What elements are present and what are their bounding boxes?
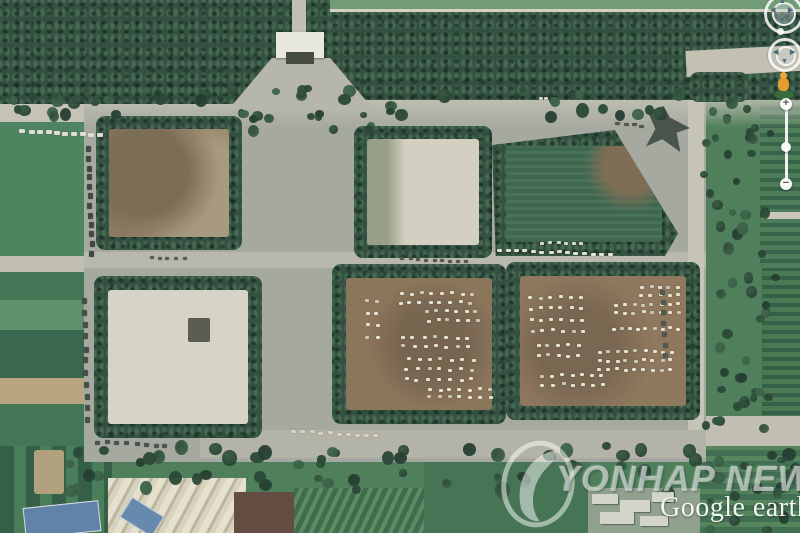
vehicle-dot	[668, 358, 672, 361]
vehicle-dot	[670, 351, 674, 354]
vehicle-dot	[401, 336, 405, 339]
tree-blob	[729, 209, 737, 216]
vehicle-dot	[410, 293, 414, 296]
vehicle-dot	[88, 133, 94, 137]
vehicle-dot	[429, 292, 433, 295]
vehicle-dot	[400, 292, 404, 295]
vehicle-dot	[640, 286, 644, 289]
vehicle-dot	[459, 367, 463, 370]
tree-blob	[209, 443, 221, 455]
vehicle-dot	[413, 345, 417, 348]
vehicle-dot	[608, 253, 613, 256]
tree-blob	[635, 443, 647, 457]
vehicle-dot	[375, 300, 379, 303]
vehicle-dot	[539, 306, 543, 309]
tree-blob	[632, 109, 644, 120]
vehicle-dot	[540, 384, 544, 387]
vehicle-dot	[539, 251, 544, 254]
vehicle-dot	[444, 336, 448, 339]
zoom-in-button[interactable]: +	[780, 98, 792, 110]
vehicle-dot	[591, 384, 595, 387]
vehicle-dot	[291, 430, 296, 433]
vehicle-dot	[468, 302, 472, 305]
tree-blob	[712, 134, 719, 143]
vehicle-dot	[468, 389, 472, 392]
tree-blob	[192, 473, 202, 485]
move-right-arrow[interactable]: ▶	[790, 49, 795, 56]
tree-blob	[60, 108, 71, 121]
vehicle-dot	[86, 156, 91, 162]
tree-blob	[737, 222, 749, 234]
vehicle-dot	[571, 384, 575, 387]
look-right-arrow[interactable]: ▶	[788, 7, 793, 14]
tree-blob	[10, 96, 18, 105]
tree-blob	[103, 96, 113, 104]
vehicle-dot	[83, 370, 88, 376]
vehicle-dot	[557, 241, 561, 244]
vehicle-dot	[183, 257, 187, 260]
tree-blob	[83, 469, 95, 482]
vehicle-dot	[676, 328, 680, 331]
vehicle-dot	[663, 343, 668, 348]
vehicle-dot	[506, 249, 511, 252]
vehicle-dot	[642, 358, 646, 361]
tree-blob	[175, 440, 189, 455]
vehicle-dot	[88, 193, 93, 199]
vehicle-dot	[540, 329, 544, 332]
vehicle-dot	[668, 368, 672, 371]
vehicle-dot	[651, 369, 655, 372]
vehicle-dot	[546, 353, 550, 356]
vehicle-dot	[639, 125, 644, 128]
vehicle-dot	[476, 319, 480, 322]
vehicle-dot	[577, 344, 581, 347]
look-down-arrow[interactable]: ▼	[779, 17, 786, 24]
vehicle-dot	[425, 310, 429, 313]
vehicle-dot	[365, 299, 369, 302]
vehicle-dot	[666, 286, 670, 289]
tree-blob	[720, 368, 729, 377]
vehicle-dot	[668, 311, 672, 314]
tree-blob	[519, 86, 528, 96]
vehicle-dot	[560, 373, 564, 376]
vehicle-dot	[404, 368, 408, 371]
tree-blob	[143, 88, 150, 94]
vehicle-dot	[457, 395, 461, 398]
tree-blob	[723, 116, 731, 124]
tree-blob	[744, 272, 754, 283]
vehicle-dot	[466, 345, 470, 348]
look-left-arrow[interactable]: ◀	[770, 7, 775, 14]
vehicle-dot	[46, 130, 52, 134]
vehicle-dot	[62, 132, 68, 136]
vehicle-dot	[606, 360, 610, 363]
vehicle-dot	[572, 242, 576, 245]
vehicle-dot	[434, 344, 438, 347]
pegman-body	[778, 78, 789, 91]
tree-blob	[317, 455, 325, 463]
tree-blob	[322, 478, 334, 488]
vehicle-dot	[174, 257, 178, 260]
zoom-slider[interactable]: + −	[779, 98, 793, 192]
vehicle-dot	[614, 304, 618, 307]
vehicle-dot	[456, 260, 460, 263]
vehicle-dot	[416, 367, 420, 370]
generated-detail-layer	[0, 0, 800, 533]
vehicle-dot	[650, 359, 654, 362]
tree-blob	[755, 388, 764, 396]
vehicle-dot	[470, 293, 474, 296]
vehicle-dot	[624, 350, 628, 353]
vehicle-dot	[660, 369, 664, 372]
tree-blob	[756, 315, 764, 322]
tree-blob	[716, 289, 727, 299]
google-earth-logo: Google earth	[660, 492, 800, 524]
vehicle-dot	[631, 312, 635, 315]
vehicle-dot	[580, 373, 584, 376]
vehicle-dot	[616, 350, 620, 353]
vehicle-dot	[114, 441, 119, 445]
vehicle-dot	[644, 349, 648, 352]
vehicle-dot	[427, 395, 431, 398]
tree-blob	[382, 451, 394, 465]
tree-blob	[99, 446, 109, 455]
tree-blob	[91, 100, 98, 106]
vehicle-dot	[428, 358, 432, 361]
vehicle-dot	[87, 174, 92, 180]
tree-blob	[764, 394, 773, 401]
vehicle-dot	[444, 346, 448, 349]
vehicle-dot	[124, 441, 129, 445]
vehicle-dot	[85, 394, 90, 400]
tree-blob	[386, 108, 395, 115]
vehicle-dot	[641, 304, 645, 307]
vehicle-dot	[668, 294, 672, 297]
tree-blob	[702, 139, 712, 148]
vehicle-dot	[612, 328, 616, 331]
vehicle-dot	[355, 434, 360, 437]
vehicle-dot	[434, 309, 438, 312]
vehicle-dot	[661, 359, 665, 362]
vehicle-dot	[531, 250, 536, 253]
vehicle-dot	[557, 250, 562, 253]
vehicle-dot	[570, 319, 574, 322]
move-down-arrow[interactable]: ▼	[781, 58, 788, 65]
vehicle-dot	[88, 213, 93, 219]
vehicle-dot	[457, 388, 461, 391]
vehicle-dot	[83, 357, 88, 363]
vehicle-dot	[623, 303, 627, 306]
tree-blob	[329, 125, 338, 134]
vehicle-dot	[105, 440, 110, 444]
vehicle-dot	[89, 222, 94, 228]
vehicle-dot	[639, 294, 643, 297]
vehicle-dot	[641, 368, 645, 371]
vehicle-dot	[440, 292, 444, 295]
tree-blob	[169, 471, 182, 485]
vehicle-dot	[514, 249, 519, 252]
tree-blob	[395, 109, 408, 121]
tree-blob	[723, 242, 734, 255]
vehicle-dot	[580, 319, 584, 322]
vehicle-dot	[470, 369, 474, 372]
vehicle-dot	[676, 293, 680, 296]
vehicle-dot	[564, 242, 568, 245]
vehicle-dot	[82, 310, 87, 316]
vehicle-dot	[29, 130, 35, 134]
vehicle-dot	[663, 353, 668, 358]
vehicle-dot	[662, 332, 667, 337]
vehicle-dot	[598, 351, 602, 354]
vehicle-dot	[423, 336, 427, 339]
vehicle-dot	[540, 375, 544, 378]
vehicle-dot	[460, 379, 464, 382]
vehicle-dot	[551, 384, 555, 387]
tree-blob	[746, 128, 755, 135]
vehicle-dot	[445, 309, 449, 312]
tree-blob	[249, 115, 258, 123]
tree-blob	[598, 104, 608, 114]
tree-blob	[399, 469, 407, 476]
vehicle-dot	[660, 290, 665, 295]
vehicle-dot	[591, 253, 596, 256]
vehicle-dot	[162, 444, 167, 448]
vehicle-dot	[539, 97, 543, 100]
tree-blob	[759, 424, 769, 434]
vehicle-dot	[438, 357, 442, 360]
tree-blob	[709, 107, 717, 116]
vehicle-dot	[632, 368, 636, 371]
vehicle-dot	[597, 368, 601, 371]
vehicle-dot	[623, 359, 627, 362]
tree-blob	[438, 89, 450, 103]
tree-blob	[360, 112, 366, 118]
vehicle-dot	[633, 303, 637, 306]
tree-blob	[238, 110, 248, 119]
vehicle-dot	[373, 434, 378, 437]
tree-blob	[760, 207, 770, 218]
vehicle-dot	[579, 296, 583, 299]
vehicle-dot	[450, 359, 454, 362]
tree-blob	[394, 452, 407, 464]
vehicle-dot	[677, 311, 681, 314]
vehicle-dot	[448, 378, 452, 381]
vehicle-dot	[54, 131, 60, 135]
vehicle-dot	[676, 286, 680, 289]
vehicle-dot	[80, 132, 86, 136]
tree-blob	[576, 103, 589, 118]
vehicle-dot	[648, 294, 652, 297]
vehicle-dot	[409, 257, 413, 260]
vehicle-dot	[544, 97, 548, 100]
vehicle-dot	[346, 433, 351, 436]
tree-blob	[722, 329, 733, 339]
tree-blob	[758, 250, 766, 258]
vehicle-dot	[376, 324, 380, 327]
tree-blob	[272, 88, 281, 95]
vehicle-dot	[562, 382, 566, 385]
tree-blob	[743, 105, 752, 114]
tree-blob	[315, 110, 324, 117]
vehicle-dot	[83, 322, 88, 328]
tree-blob	[140, 481, 152, 495]
vehicle-dot	[653, 327, 657, 330]
vehicle-dot	[658, 286, 662, 289]
vehicle-dot	[539, 297, 543, 300]
tree-blob	[739, 373, 747, 382]
tree-blob	[715, 416, 725, 425]
tree-blob	[258, 445, 272, 460]
building-roof	[620, 500, 650, 512]
vehicle-dot	[84, 347, 89, 353]
vehicle-dot	[565, 251, 570, 254]
satellite-map-canvas[interactable]: ▲ ▼ ◀ ▶ ▲ ▼ ◀ ▶ + −	[0, 0, 800, 533]
vehicle-dot	[601, 383, 605, 386]
zoom-slider-handle[interactable]	[781, 142, 791, 152]
vehicle-dot	[650, 311, 654, 314]
vehicle-dot	[405, 377, 409, 380]
tree-blob	[49, 111, 59, 122]
tree-blob	[762, 526, 772, 533]
vehicle-dot	[154, 444, 159, 448]
move-joystick[interactable]: ▲ ▼ ◀ ▶	[768, 38, 800, 72]
vehicle-dot	[318, 432, 323, 435]
vehicle-dot	[636, 328, 640, 331]
vehicle-dot	[551, 328, 555, 331]
vehicle-dot	[548, 241, 552, 244]
look-up-arrow[interactable]: ▲	[779, 0, 786, 5]
vehicle-dot	[537, 344, 541, 347]
tree-blob	[73, 447, 84, 458]
vehicle-dot	[85, 405, 90, 411]
vehicle-dot	[87, 184, 92, 190]
vehicle-dot	[468, 396, 472, 399]
vehicle-dot	[545, 344, 549, 347]
vehicle-dot	[456, 345, 460, 348]
tree-blob	[463, 443, 477, 456]
tree-blob	[615, 110, 625, 121]
vehicle-dot	[473, 310, 477, 313]
vehicle-dot	[438, 395, 442, 398]
tree-blob	[200, 470, 211, 480]
vehicle-dot	[158, 257, 162, 260]
vehicle-dot	[400, 257, 404, 260]
vehicle-dot	[448, 395, 452, 398]
vehicle-dot	[86, 146, 91, 152]
vehicle-dot	[83, 333, 88, 339]
vehicle-dot	[590, 374, 594, 377]
vehicle-dot	[401, 344, 405, 347]
tree-blob	[229, 85, 238, 94]
vehicle-dot	[633, 349, 637, 352]
tree-blob	[222, 450, 237, 466]
vehicle-dot	[569, 296, 573, 299]
vehicle-dot	[407, 301, 411, 304]
vehicle-dot	[650, 285, 654, 288]
vehicle-dot	[87, 166, 92, 172]
vehicle-dot	[540, 242, 544, 245]
vehicle-dot	[414, 379, 418, 382]
tree-blob	[700, 171, 707, 178]
tree-blob	[248, 125, 259, 137]
tree-blob	[602, 442, 611, 450]
vehicle-dot	[549, 318, 553, 321]
tree-blob	[638, 87, 646, 94]
tree-blob	[645, 105, 654, 114]
vehicle-dot	[642, 310, 646, 313]
tree-blob	[154, 90, 162, 97]
vehicle-dot	[572, 330, 576, 333]
vehicle-dot	[624, 369, 628, 372]
vehicle-dot	[632, 123, 637, 126]
vehicle-dot	[71, 132, 77, 136]
vehicle-dot	[89, 251, 94, 257]
vehicle-dot	[310, 430, 315, 433]
vehicle-dot	[448, 260, 452, 263]
vehicle-dot	[571, 374, 575, 377]
tree-blob	[352, 485, 361, 494]
vehicle-dot	[416, 258, 420, 261]
vehicle-dot	[570, 306, 574, 309]
vehicle-dot	[606, 350, 610, 353]
vehicle-dot	[623, 312, 627, 315]
vehicle-dot	[643, 327, 647, 330]
tree-blob	[716, 221, 726, 232]
vehicle-dot	[418, 358, 422, 361]
vehicle-dot	[598, 359, 602, 362]
vehicle-dot	[566, 355, 570, 358]
tree-blob	[304, 85, 311, 92]
vehicle-dot	[606, 368, 610, 371]
vehicle-dot	[531, 330, 535, 333]
vehicle-dot	[576, 354, 580, 357]
vehicle-dot	[407, 357, 411, 360]
vehicle-dot	[614, 311, 618, 314]
vehicle-dot	[549, 251, 554, 254]
vehicle-dot	[549, 306, 553, 309]
vehicle-dot	[550, 375, 554, 378]
vehicle-dot	[661, 300, 666, 305]
vehicle-dot	[559, 318, 563, 321]
vehicle-dot	[437, 367, 441, 370]
move-up-arrow[interactable]: ▲	[781, 41, 788, 48]
vehicle-dot	[528, 296, 532, 299]
vehicle-dot	[466, 319, 470, 322]
vehicle-dot	[456, 319, 460, 322]
vehicle-dot	[428, 367, 432, 370]
vehicle-dot	[464, 260, 468, 263]
tree-blob	[740, 210, 751, 220]
vehicle-dot	[661, 310, 666, 315]
vehicle-dot	[87, 203, 92, 209]
move-left-arrow[interactable]: ◀	[773, 49, 778, 56]
vehicle-dot	[426, 378, 430, 381]
vehicle-dot	[427, 320, 431, 323]
earth-nav-controls: ▲ ▼ ◀ ▶ ▲ ▼ ◀ ▶ + −	[755, 0, 800, 194]
vehicle-dot	[417, 301, 421, 304]
look-joystick-knob[interactable]	[777, 28, 784, 35]
vehicle-dot	[135, 442, 140, 446]
tree-blob	[575, 90, 584, 100]
vehicle-dot	[437, 318, 441, 321]
vehicle-dot	[97, 133, 103, 137]
vehicle-dot	[624, 123, 629, 126]
pegman[interactable]	[773, 72, 795, 98]
vehicle-dot	[37, 130, 43, 134]
zoom-out-button[interactable]: −	[780, 178, 792, 190]
vehicle-dot	[144, 443, 149, 447]
tree-blob	[715, 342, 726, 353]
